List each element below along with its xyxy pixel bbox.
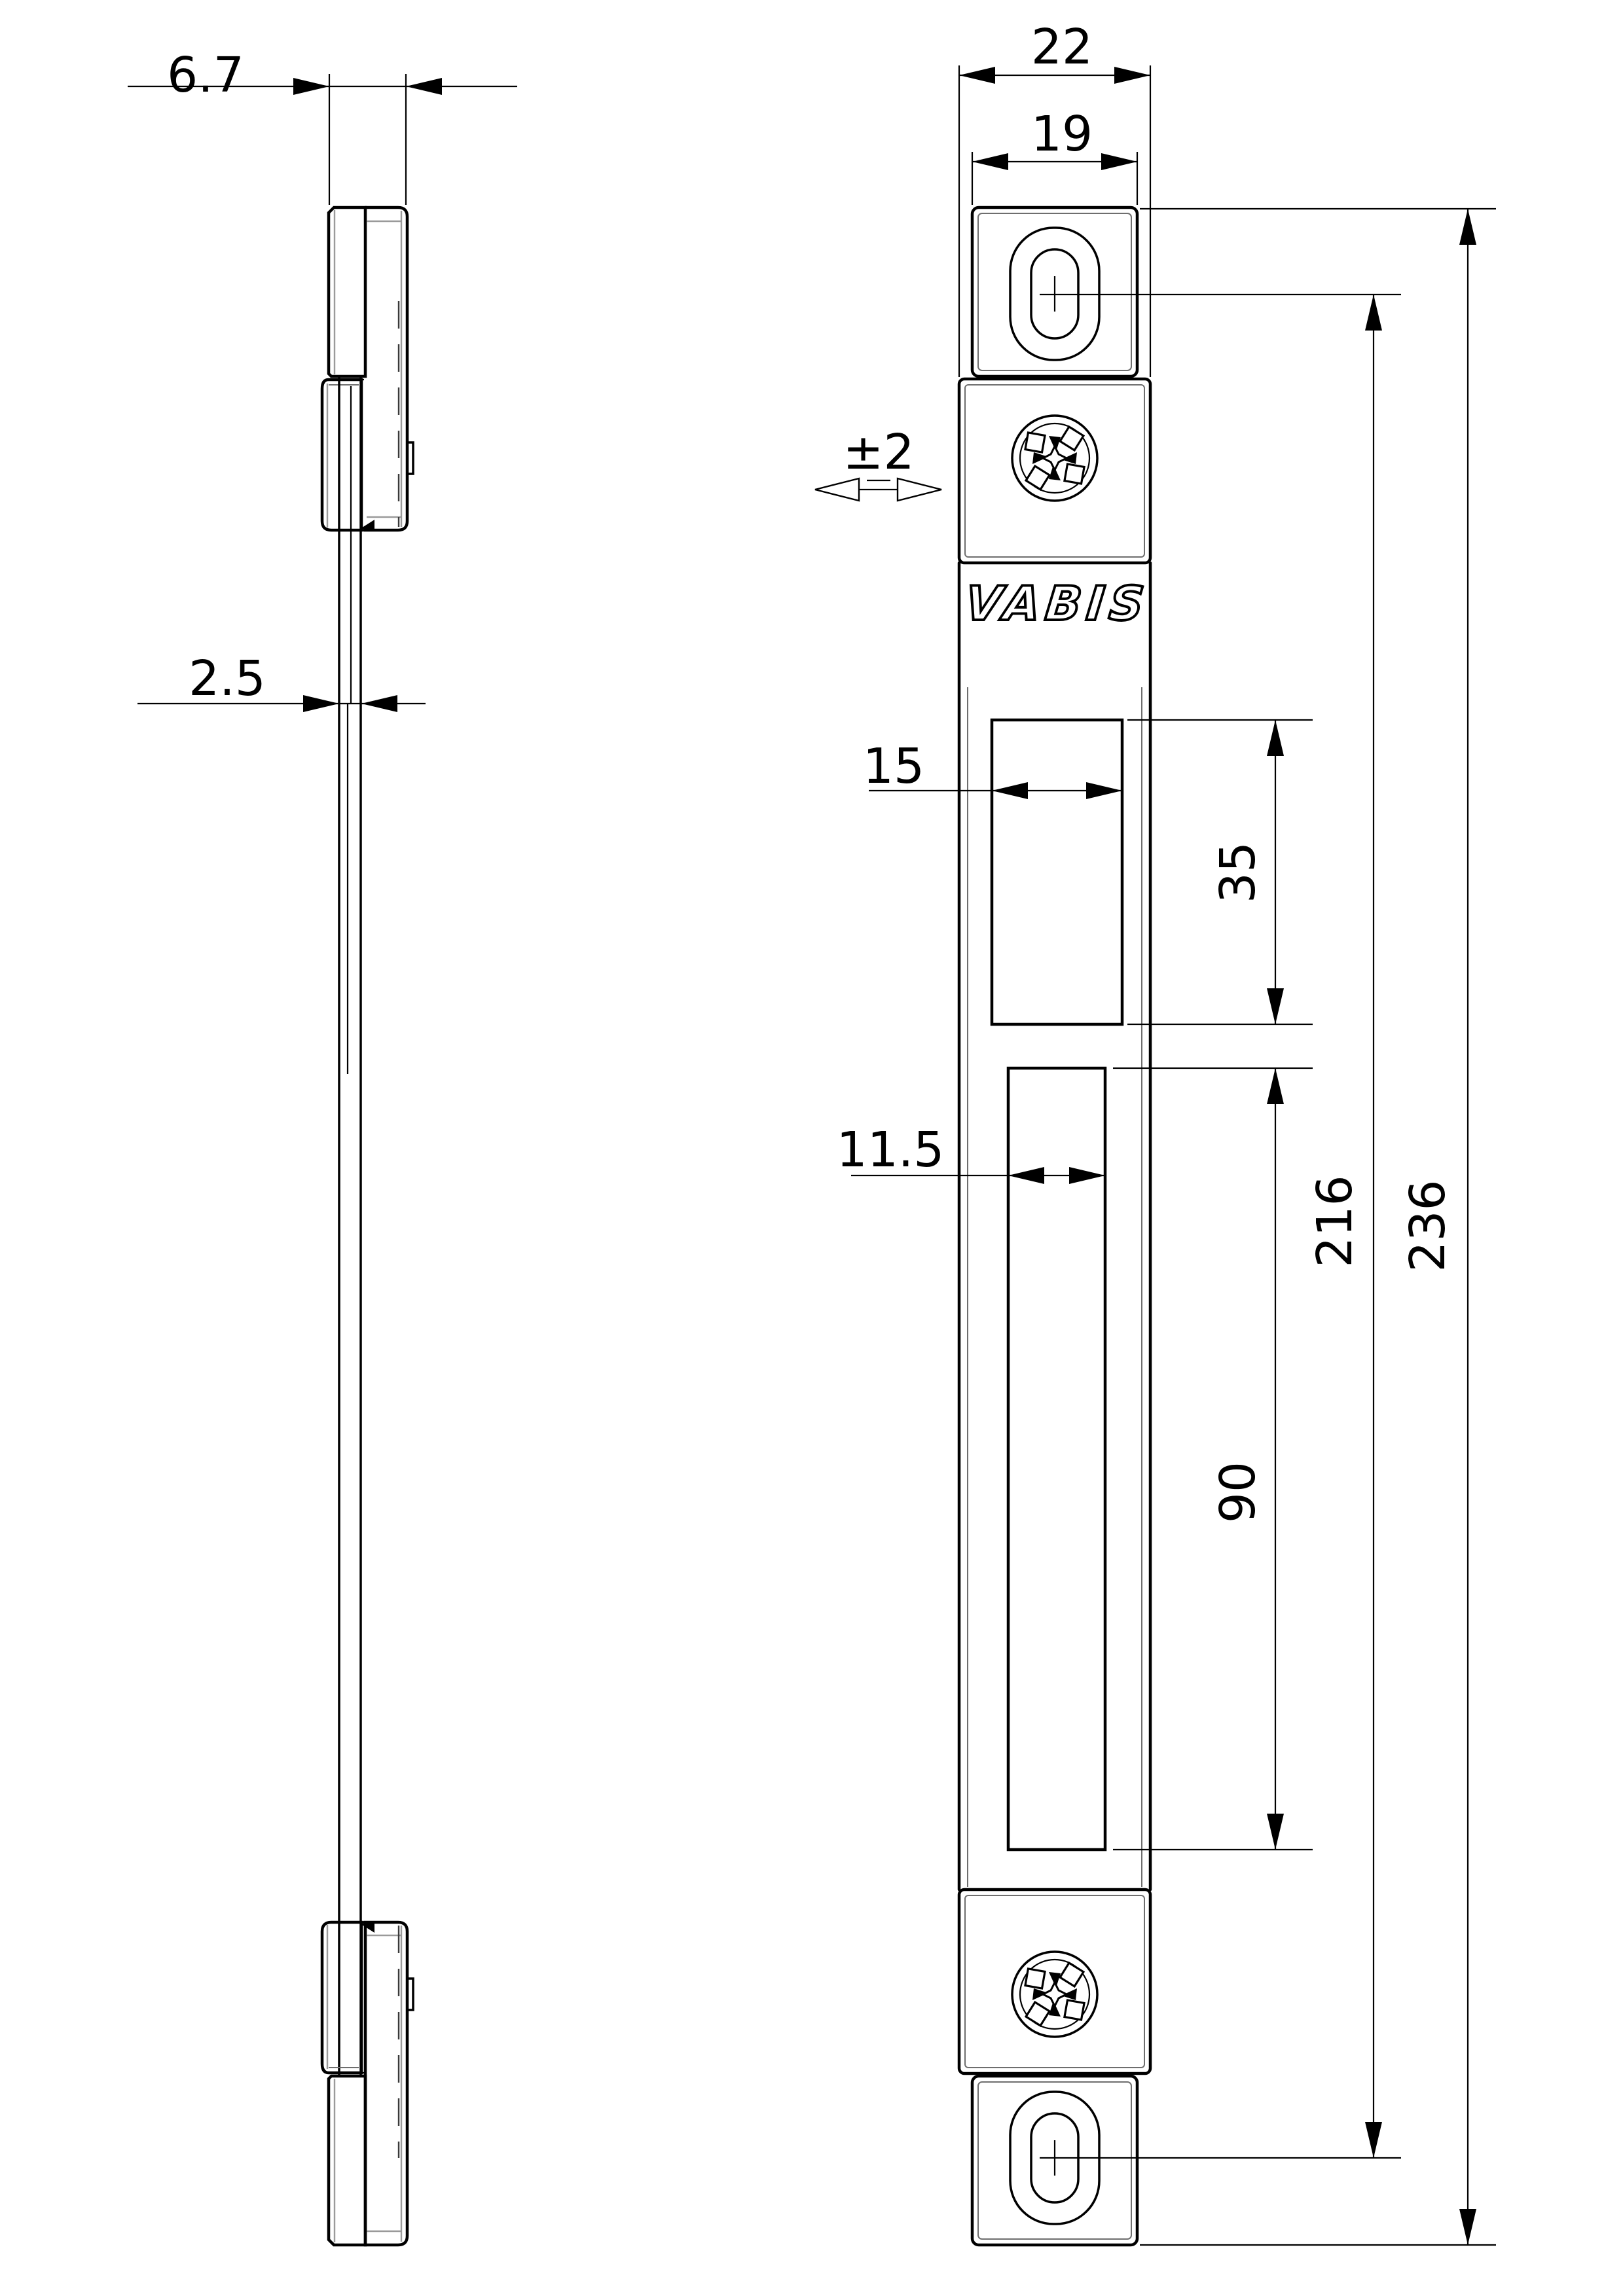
lateral-tolerance-label: ±2 bbox=[843, 424, 914, 480]
side-top-keeper bbox=[322, 207, 413, 530]
dimension-bolt-hole-width: 11.5 bbox=[837, 1122, 1105, 1184]
dimension-slot-spacing: 216 bbox=[1307, 295, 1382, 2158]
side-bottom-keeper bbox=[322, 1922, 413, 2245]
top-screw bbox=[1012, 416, 1097, 501]
front-view: 22 19 ±2 bbox=[815, 19, 1496, 2245]
bolt-hole-height-label: 90 bbox=[1210, 1462, 1266, 1523]
dimension-bolt-hole-height: 90 bbox=[1113, 1068, 1313, 1850]
dimension-overall-length: 236 bbox=[1400, 209, 1476, 2245]
bottom-screw bbox=[1012, 1952, 1097, 2037]
technical-drawing: 6.7 bbox=[0, 0, 1623, 2296]
bolt-hole-width-label: 11.5 bbox=[837, 1122, 945, 1178]
latch-hole-width-label: 15 bbox=[863, 738, 924, 795]
plate-thickness-label: 2.5 bbox=[189, 651, 266, 707]
side-tab-top bbox=[407, 442, 413, 474]
bolt-hole bbox=[1008, 1068, 1105, 1850]
side-view: 6.7 bbox=[128, 47, 517, 2245]
dimension-overall-width: 22 bbox=[959, 19, 1150, 377]
side-plate bbox=[339, 376, 361, 2076]
dimension-cap-width: 19 bbox=[972, 106, 1137, 205]
annotation-lateral-tolerance: ±2 bbox=[815, 424, 941, 501]
cap-depth-label: 6.7 bbox=[167, 47, 244, 103]
overall-length-label: 236 bbox=[1400, 1179, 1456, 1272]
overall-width-label: 22 bbox=[1031, 19, 1093, 75]
front-top-screw-cap bbox=[959, 379, 1150, 563]
cap-width-label: 19 bbox=[1031, 106, 1093, 162]
slot-spacing-label: 216 bbox=[1307, 1175, 1363, 1267]
latch-hole bbox=[992, 720, 1122, 1024]
front-bottom-oval-cap bbox=[972, 2076, 1137, 2245]
front-bottom-screw-cap bbox=[959, 1890, 1150, 2073]
dimension-cap-depth: 6.7 bbox=[128, 47, 517, 205]
vabis-logo: VABIS bbox=[962, 577, 1152, 632]
side-tab-bottom bbox=[407, 1979, 413, 2010]
front-top-oval-cap bbox=[972, 207, 1137, 376]
dimension-latch-hole-height: 35 bbox=[1127, 720, 1313, 1024]
latch-hole-height-label: 35 bbox=[1210, 842, 1266, 903]
dimension-plate-thickness: 2.5 bbox=[137, 651, 426, 712]
